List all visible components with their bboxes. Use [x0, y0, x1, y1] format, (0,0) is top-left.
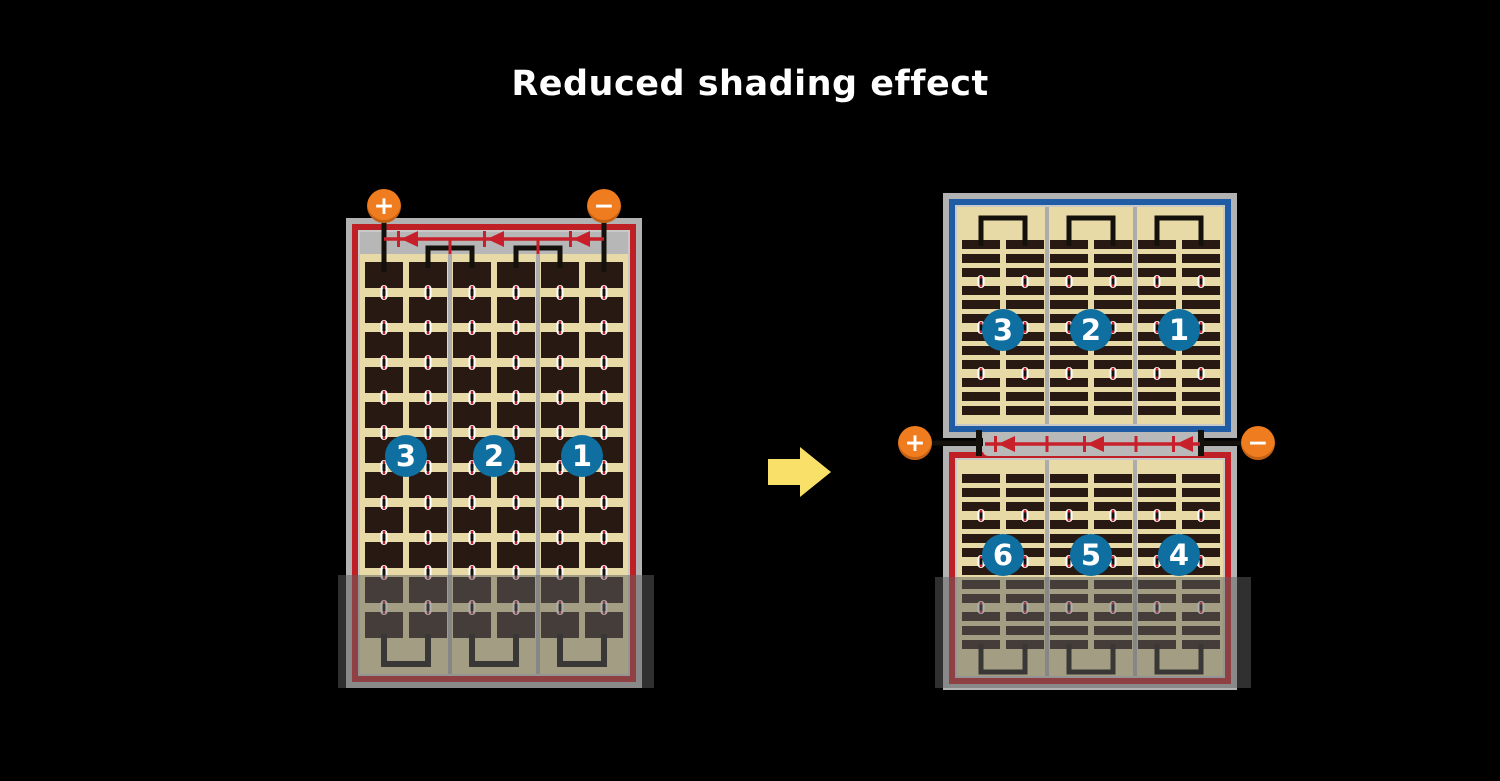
negative-terminal-left-module: − — [587, 189, 621, 223]
string-badge-right-top-3: 3 — [982, 309, 1024, 351]
string-badge-right-top-1: 1 — [1158, 309, 1200, 351]
string-badge-right-bottom-5: 5 — [1070, 534, 1112, 576]
positive-terminal-right-module: + — [898, 426, 932, 460]
string-badge-right-top-2: 2 — [1070, 309, 1112, 351]
string-badge-left-3: 3 — [385, 435, 427, 477]
diagram-title: Reduced shading effect — [0, 64, 1500, 104]
string-badge-left-1: 1 — [561, 435, 603, 477]
string-badge-right-bottom-4: 4 — [1158, 534, 1200, 576]
solar-panel-graphics — [0, 0, 1500, 781]
diagram-canvas: Reduced shading effect + − + − 3 2 1 3 2… — [0, 0, 1500, 781]
string-badge-right-bottom-6: 6 — [982, 534, 1024, 576]
string-badge-left-2: 2 — [473, 435, 515, 477]
positive-terminal-left-module: + — [367, 189, 401, 223]
negative-terminal-right-module: − — [1241, 426, 1275, 460]
